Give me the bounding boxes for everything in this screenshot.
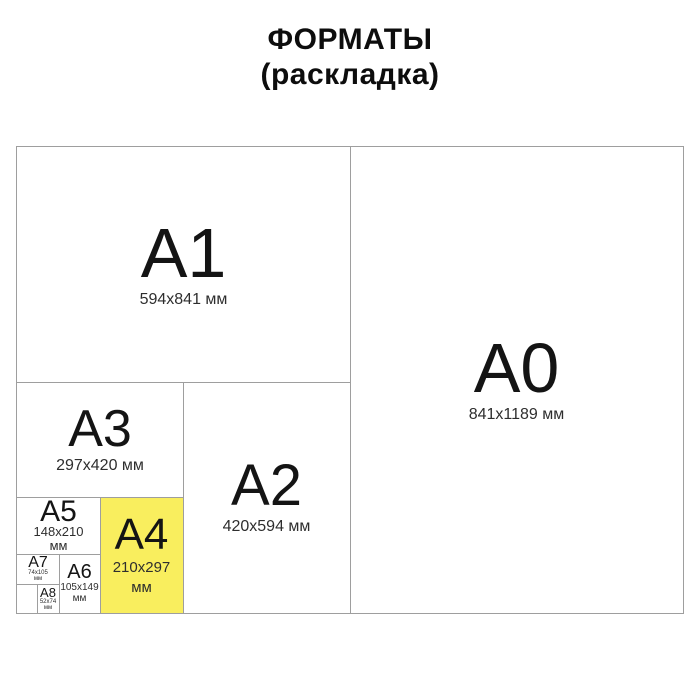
format-box-a2: A2 420x594 мм (183, 382, 350, 613)
format-dims-a8-line2: мм (44, 605, 52, 611)
format-box-a4-highlighted: A4 210x297 мм (100, 497, 183, 613)
divider-line-a1-bottom (17, 382, 351, 383)
title-line-2: (раскладка) (0, 57, 700, 92)
format-box-a1: A1 594x841 мм (17, 147, 350, 382)
format-dims-a6-line2: мм (73, 593, 87, 604)
paper-formats-diagram: A0 841x1189 мм A1 594x841 мм A3 297x420 … (16, 146, 684, 614)
format-dims-a7-line2: мм (34, 576, 42, 582)
divider-line-a4-left (100, 497, 101, 613)
format-label-a2: A2 (231, 459, 302, 513)
format-dims-a1: 594x841 мм (140, 291, 228, 309)
format-label-a3: A3 (68, 405, 132, 453)
divider-line-a7-bottom (17, 584, 60, 585)
format-box-a7: A7 74x105 мм (17, 554, 59, 584)
divider-line-a0-left (350, 147, 351, 613)
format-dims-a4-line2: мм (131, 579, 152, 596)
format-box-a8: A8 52x74 мм (37, 584, 59, 613)
format-dims-a2: 420x594 мм (223, 518, 311, 536)
format-label-a1: A1 (141, 221, 227, 285)
format-dims-a6-line1: 105x149 (60, 582, 98, 593)
format-box-a3: A3 297x420 мм (17, 382, 183, 497)
format-label-a4: A4 (115, 514, 169, 556)
divider-line-a8-left (37, 584, 38, 613)
format-label-a8: A8 (40, 587, 56, 599)
format-dims-a5-line1: 148x210 (34, 525, 84, 539)
format-box-a5: A5 148x210 мм (17, 497, 100, 554)
format-label-a6: A6 (67, 563, 91, 582)
format-box-a6: A6 105x149 мм (59, 554, 100, 613)
format-label-a7: A7 (28, 556, 48, 570)
format-dims-a4-line1: 210x297 (113, 559, 171, 576)
diagram-inner: A0 841x1189 мм A1 594x841 мм A3 297x420 … (17, 147, 683, 613)
page-title: ФОРМАТЫ (раскладка) (0, 22, 700, 92)
format-dims-a3: 297x420 мм (56, 457, 144, 475)
format-label-a0: A0 (474, 336, 560, 400)
title-line-1: ФОРМАТЫ (0, 22, 700, 57)
format-dims-a0: 841x1189 мм (469, 406, 565, 424)
format-box-a0: A0 841x1189 мм (350, 147, 683, 613)
format-dims-a5-line2: мм (50, 539, 68, 553)
format-label-a5: A5 (40, 498, 77, 525)
